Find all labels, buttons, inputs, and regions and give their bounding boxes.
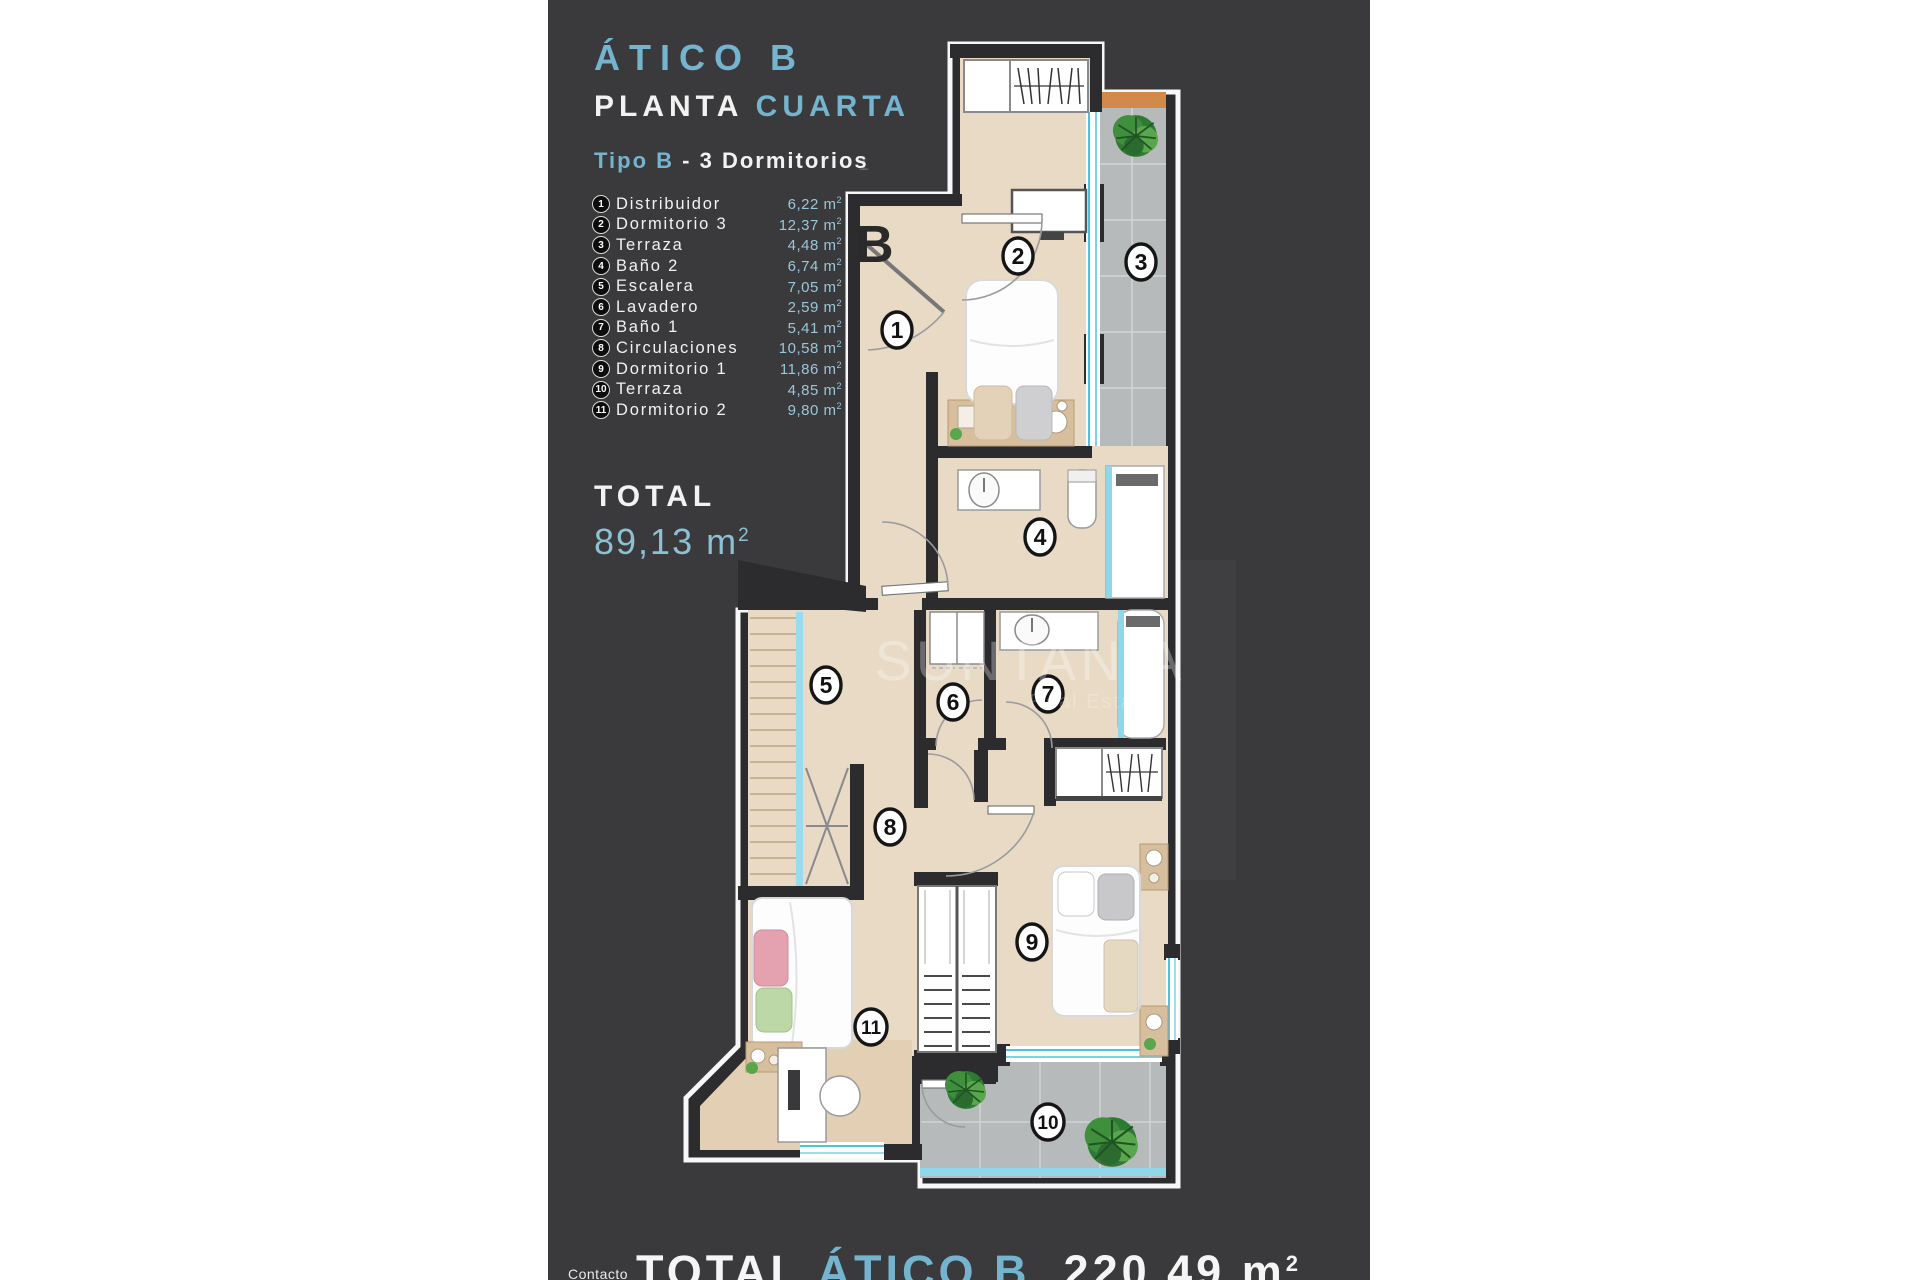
type-prefix: Tipo B xyxy=(594,148,674,173)
svg-text:9: 9 xyxy=(1026,929,1039,955)
badge-room11: 11 xyxy=(855,1009,887,1045)
legend-bullet: 8 xyxy=(592,339,610,357)
page-subtitle: PLANTA CUARTA xyxy=(594,92,910,122)
floor-plan: 1 2 3 4 5 6 7 8 9 10 11 B 1 SUNTANIA Rea… xyxy=(548,0,1370,1280)
total-value: 89,13 m2 xyxy=(594,524,751,560)
legend-row: 2Dormitorio 312,37 m2 xyxy=(592,215,842,236)
badge-room5: 5 xyxy=(811,667,841,703)
total-block: TOTAL 89,13 m2 xyxy=(594,482,751,560)
badge-room1: 1 xyxy=(882,312,912,348)
header: ÁTICO B PLANTA CUARTA xyxy=(594,40,910,122)
footer-value: 220,49 xyxy=(1064,1246,1226,1280)
svg-text:1: 1 xyxy=(891,317,904,343)
legend-row: 8Circulaciones10,58 m2 xyxy=(592,338,842,359)
legend-row: 3Terraza4,48 m2 xyxy=(592,235,842,256)
legend-bullet: 1 xyxy=(592,195,610,213)
legend-row: 11Dormitorio 29,80 m2 xyxy=(592,400,842,421)
wardrobe-center xyxy=(918,886,996,1052)
legend-row: 6Lavadero2,59 m2 xyxy=(592,297,842,318)
watermark-line1: SUNTANIA xyxy=(875,629,1186,692)
legend-bullet: 2 xyxy=(592,216,610,234)
badge-room2: 2 xyxy=(1003,238,1033,274)
legend-row: 9Dormitorio 111,86 m2 xyxy=(592,359,842,380)
page: 1 2 3 4 5 6 7 8 9 10 11 B 1 SUNTANIA Rea… xyxy=(0,0,1920,1280)
badge-room8: 8 xyxy=(875,809,905,845)
footer-accent: ÁTICO B xyxy=(818,1246,1031,1280)
type-suffix: - 3 Dormitorios xyxy=(682,148,868,173)
bed-room2 xyxy=(948,280,1074,446)
watermark-line2: Real Estate xyxy=(1029,691,1154,713)
legend-bullet: 9 xyxy=(592,360,610,378)
legend-row: 1Distribuidor6,22 m2 xyxy=(592,194,842,215)
legend-bullet: 11 xyxy=(592,401,610,419)
legend-bullet: 6 xyxy=(592,298,610,316)
legend-bullet: 7 xyxy=(592,319,610,337)
room-legend: 1Distribuidor6,22 m2 2Dormitorio 312,37 … xyxy=(592,194,842,421)
badge-room3: 3 xyxy=(1126,244,1156,280)
svg-text:5: 5 xyxy=(820,672,833,698)
unit-letter: B xyxy=(856,216,894,274)
legend-row: 10Terraza4,85 m2 xyxy=(592,379,842,400)
legend-bullet: 4 xyxy=(592,257,610,275)
type-line: Tipo B - 3 Dormitorios xyxy=(594,148,869,174)
wardrobe-room2 xyxy=(964,60,1088,112)
svg-text:3: 3 xyxy=(1135,249,1148,275)
total-label: TOTAL xyxy=(594,482,751,512)
svg-text:6: 6 xyxy=(947,689,960,715)
legend-row: 7Baño 15,41 m2 xyxy=(592,318,842,339)
badge-room4: 4 xyxy=(1025,519,1055,555)
badge-room10: 10 xyxy=(1032,1104,1064,1140)
planter-strip xyxy=(1102,92,1166,108)
plan-panel: 1 2 3 4 5 6 7 8 9 10 11 B 1 SUNTANIA Rea… xyxy=(548,0,1370,1280)
legend-bullet: 10 xyxy=(592,381,610,399)
page-title: ÁTICO B xyxy=(594,40,910,76)
svg-text:2: 2 xyxy=(1012,243,1025,269)
closet-room9 xyxy=(1056,748,1162,801)
subtitle-plain: PLANTA xyxy=(594,90,742,123)
svg-text:11: 11 xyxy=(861,1018,882,1039)
contact-link[interactable]: Contacto xyxy=(568,1266,628,1280)
legend-row: 4Baño 26,74 m2 xyxy=(592,256,842,277)
svg-text:4: 4 xyxy=(1034,524,1047,550)
svg-text:10: 10 xyxy=(1037,1113,1058,1134)
subtitle-accent: CUARTA xyxy=(756,90,910,123)
legend-bullet: 5 xyxy=(592,278,610,296)
badge-room9: 9 xyxy=(1017,924,1047,960)
legend-bullet: 3 xyxy=(592,236,610,254)
neighbour-wall xyxy=(1178,560,1236,880)
svg-text:8: 8 xyxy=(884,814,897,840)
legend-row: 5Escalera7,05 m2 xyxy=(592,276,842,297)
footer-label: TOTAL xyxy=(636,1246,801,1280)
footer-total: TOTAL ÁTICO B 220,49 m2 xyxy=(636,1246,1302,1280)
